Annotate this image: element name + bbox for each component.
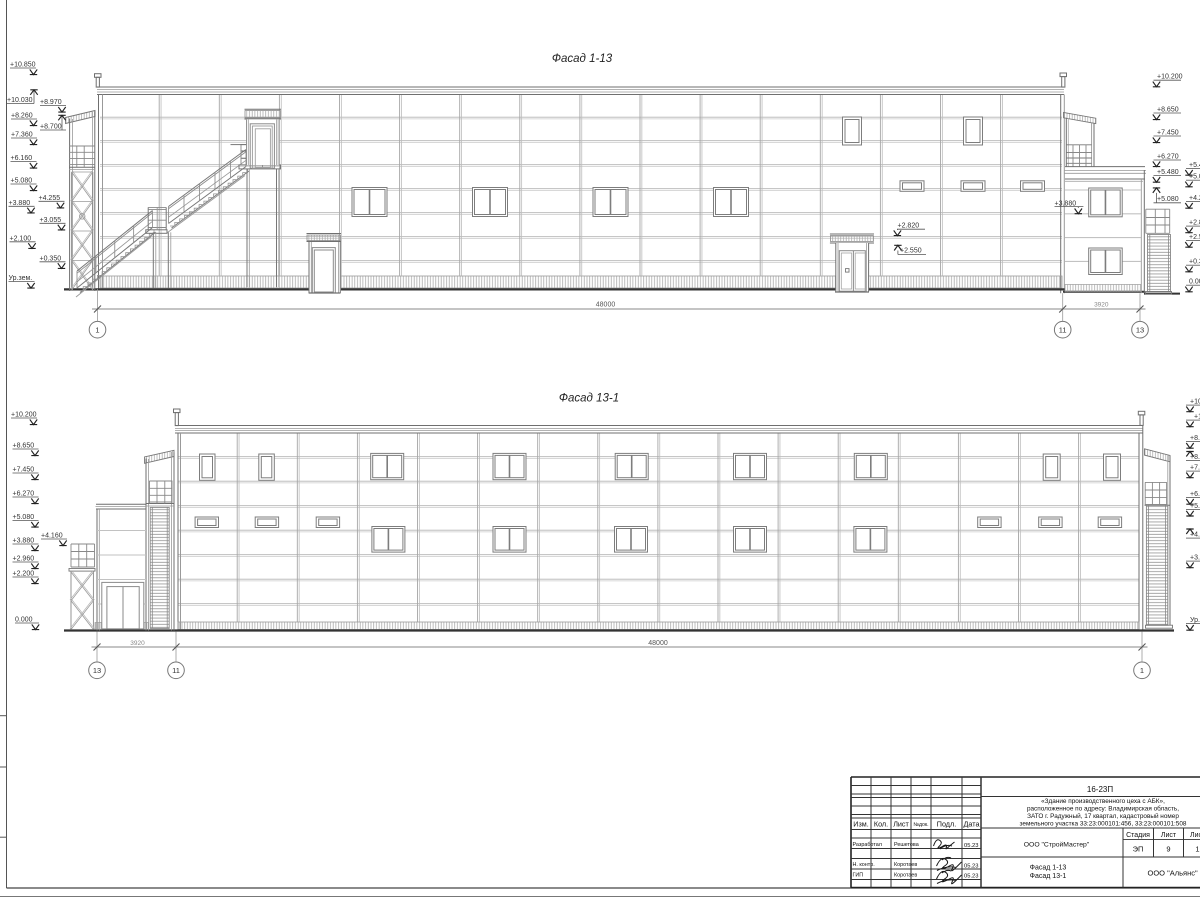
svg-text:+7.360: +7.360 <box>1190 465 1200 472</box>
svg-text:+3.055: +3.055 <box>1190 555 1200 562</box>
svg-text:16-23П: 16-23П <box>1087 785 1113 794</box>
svg-text:№док.: №док. <box>913 822 928 828</box>
svg-text:+4.160: +4.160 <box>41 533 63 540</box>
svg-text:+5.080: +5.080 <box>11 178 33 185</box>
svg-text:+8.260: +8.260 <box>11 113 33 120</box>
svg-text:48000: 48000 <box>648 640 668 647</box>
svg-text:1: 1 <box>1195 845 1199 854</box>
svg-text:+2.960: +2.960 <box>13 556 35 563</box>
svg-text:+0.350: +0.350 <box>1189 259 1200 266</box>
svg-text:05.23: 05.23 <box>964 873 979 879</box>
svg-text:3920: 3920 <box>130 640 145 647</box>
svg-text:«Здание производственного цеха: «Здание производственного цеха с АБК», <box>1041 798 1165 805</box>
svg-text:+10.200: +10.200 <box>11 412 37 419</box>
svg-text:Лис: Лис <box>1190 832 1200 839</box>
svg-text:+5.480: +5.480 <box>1157 169 1179 176</box>
svg-text:Ур.зем.: Ур.зем. <box>1190 617 1200 624</box>
svg-text:Н. контр.: Н. контр. <box>853 862 875 868</box>
svg-text:+2.820: +2.820 <box>1189 220 1200 227</box>
svg-text:+0.350: +0.350 <box>40 255 62 262</box>
svg-text:+2.100: +2.100 <box>10 235 32 242</box>
svg-text:ООО "Альянс": ООО "Альянс" <box>1148 869 1198 878</box>
svg-text:05.23: 05.23 <box>964 843 979 849</box>
svg-text:48000: 48000 <box>596 302 616 309</box>
svg-text:Подл.: Подл. <box>937 820 956 829</box>
svg-text:+2.550: +2.550 <box>1189 234 1200 241</box>
svg-text:Коротаев: Коротаев <box>894 872 917 878</box>
svg-text:Фасад 13-1: Фасад 13-1 <box>1030 873 1067 880</box>
svg-text:+8.650: +8.650 <box>13 443 35 450</box>
svg-text:расположенное по адресу: Влади: расположенное по адресу: Владимирская об… <box>1027 805 1179 813</box>
svg-text:Кол.: Кол. <box>874 820 888 829</box>
svg-text:1: 1 <box>95 326 99 335</box>
svg-text:Лист: Лист <box>1161 832 1177 839</box>
svg-text:+4.255: +4.255 <box>1190 532 1200 539</box>
svg-text:ЗАТО г. Радужный, 17 квартал,: ЗАТО г. Радужный, 17 квартал, кадастровы… <box>1027 812 1179 820</box>
svg-text:+6.270: +6.270 <box>13 491 35 498</box>
svg-text:+8.650: +8.650 <box>1157 106 1179 113</box>
svg-text:Фасад 1-13: Фасад 1-13 <box>552 53 613 65</box>
svg-text:+6.160: +6.160 <box>11 155 33 162</box>
svg-text:Лист: Лист <box>893 820 909 829</box>
svg-text:Разработал: Разработал <box>853 842 882 848</box>
svg-text:+6.270: +6.270 <box>1157 153 1179 160</box>
svg-text:+2.550: +2.550 <box>900 247 922 254</box>
svg-text:+3.880: +3.880 <box>9 200 31 207</box>
svg-text:+10.850: +10.850 <box>1190 399 1200 406</box>
svg-text:Фасад 13-1: Фасад 13-1 <box>559 393 619 405</box>
svg-text:+5.080: +5.080 <box>13 514 35 521</box>
svg-text:13: 13 <box>1136 326 1144 335</box>
svg-text:+4.255: +4.255 <box>1189 195 1200 202</box>
svg-text:+5.080: +5.080 <box>1157 196 1179 203</box>
svg-text:ЭП: ЭП <box>1133 845 1144 854</box>
svg-text:11: 11 <box>1059 326 1067 335</box>
svg-text:+5.080: +5.080 <box>1190 503 1200 510</box>
svg-text:+6.160: +6.160 <box>1190 491 1200 498</box>
svg-text:Решетова: Решетова <box>894 842 919 848</box>
svg-text:+10.030: +10.030 <box>7 97 33 104</box>
svg-text:+5.080: +5.080 <box>1189 174 1200 181</box>
svg-text:+8.700: +8.700 <box>1190 454 1200 461</box>
svg-text:+7.360: +7.360 <box>11 132 33 139</box>
svg-text:+5.480: +5.480 <box>1189 162 1200 169</box>
svg-text:1: 1 <box>1140 666 1144 675</box>
svg-text:+2.200: +2.200 <box>13 571 35 578</box>
svg-text:Стадия: Стадия <box>1126 832 1150 839</box>
svg-text:+8.700: +8.700 <box>40 124 62 131</box>
svg-text:+10.030: +10.030 <box>1194 414 1200 421</box>
svg-text:земельного участка 33:23:00010: земельного участка 33:23:000101:456, 33:… <box>1020 821 1187 828</box>
svg-text:Фасад 1-13: Фасад 1-13 <box>1030 864 1067 871</box>
svg-text:ООО "СтройМастер": ООО "СтройМастер" <box>1024 841 1090 849</box>
svg-text:+3.055: +3.055 <box>40 217 62 224</box>
svg-text:ГИП: ГИП <box>853 872 864 878</box>
svg-text:9: 9 <box>1166 845 1170 854</box>
svg-text:+4.255: +4.255 <box>39 195 61 202</box>
svg-text:Дата: Дата <box>964 820 980 829</box>
svg-text:05.23: 05.23 <box>964 863 979 869</box>
svg-text:Ур.зем.: Ур.зем. <box>9 275 33 282</box>
svg-text:+8.970: +8.970 <box>1190 435 1200 442</box>
svg-text:+3.880: +3.880 <box>13 538 35 545</box>
svg-text:11: 11 <box>172 666 180 675</box>
svg-text:+7.450: +7.450 <box>1157 129 1179 136</box>
svg-text:+7.450: +7.450 <box>13 467 35 474</box>
svg-text:+10.850: +10.850 <box>10 62 36 69</box>
svg-text:Изм.: Изм. <box>853 820 868 829</box>
svg-text:+2.820: +2.820 <box>898 223 920 230</box>
svg-text:3920: 3920 <box>1094 302 1109 309</box>
svg-text:13: 13 <box>93 666 101 675</box>
svg-text:Коротаев: Коротаев <box>894 862 917 868</box>
svg-text:+10.200: +10.200 <box>1157 74 1183 81</box>
svg-text:+8.970: +8.970 <box>40 99 62 106</box>
svg-text:0.000: 0.000 <box>1189 279 1200 286</box>
svg-text:0.000: 0.000 <box>15 617 33 624</box>
